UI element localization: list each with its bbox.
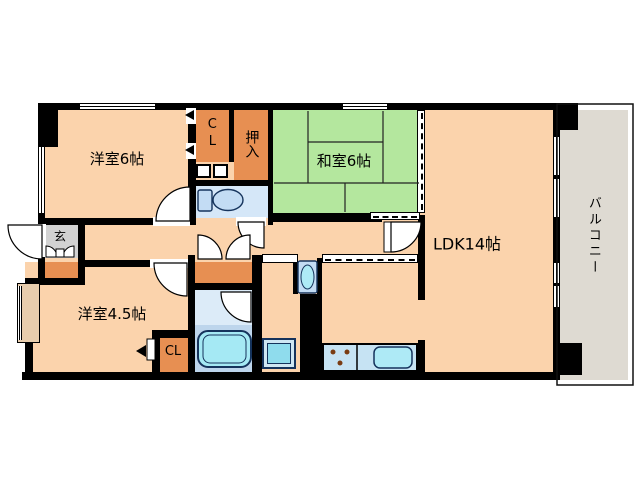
bathroom-door-swing <box>221 292 251 322</box>
stove-burners-icon <box>331 350 350 366</box>
entrance-step <box>63 246 74 257</box>
entrance-step <box>56 249 64 257</box>
ldk-door-leaf <box>384 222 391 252</box>
vanity-basin-icon <box>301 265 314 289</box>
kitchen-sink-icon <box>374 347 412 368</box>
hall-closet-door-right <box>226 235 250 259</box>
western45-door-swing <box>154 263 187 296</box>
floorplan: 洋室6帖 CL 押入 和室6帖 LDK14帖 バルコニー 玄 洋室4.5帖 CL <box>0 0 638 480</box>
label-balcony: バルコニー <box>586 196 600 276</box>
label-closet-bottom: CL <box>165 345 181 359</box>
front-door-swing <box>8 225 42 259</box>
label-japanese6: 和室6帖 <box>317 154 372 170</box>
doors-and-fixtures-layer <box>0 0 638 480</box>
entrance-step <box>46 246 57 257</box>
label-western6: 洋室6帖 <box>90 152 145 168</box>
western6-door-swing <box>156 187 190 221</box>
ldk-door-swing <box>391 222 421 252</box>
label-western45: 洋室4.5帖 <box>78 307 147 323</box>
label-entrance: 玄 <box>54 231 66 244</box>
closet-bottom-door-leaf <box>147 339 155 360</box>
hall-closet-door-left <box>198 235 222 259</box>
toilet-bowl-icon <box>213 190 243 211</box>
toilet-tank-icon <box>198 190 212 211</box>
label-closet-top: CL <box>205 117 219 151</box>
label-ldk: LDK14帖 <box>433 237 501 254</box>
closet-bottom-arrow-icon <box>136 345 146 357</box>
label-oshiire: 押入 <box>244 130 259 158</box>
